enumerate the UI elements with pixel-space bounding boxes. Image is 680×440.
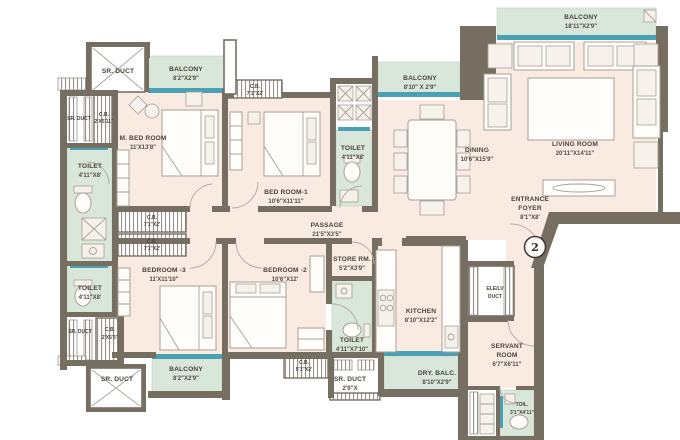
label-toilet-mid: TOILET	[341, 145, 365, 152]
svg-text:FOYER: FOYER	[518, 205, 542, 212]
svg-text:2'X5'3": 2'X5'3"	[102, 335, 119, 341]
label-sr-duct-tl: SR. DUCT	[102, 68, 134, 75]
floor-plan-drawing: SR. DUCT BALCONY 8'2"X2'9" SR. DUCT C.B.…	[0, 0, 680, 440]
svg-text:DUCT: DUCT	[488, 294, 502, 300]
label-sr-duct-left: SR. DUCT	[67, 116, 91, 122]
label-dry-balcony: DRY. BALC.	[418, 370, 456, 377]
structural-column	[224, 40, 236, 94]
balcony-tl-floor	[147, 56, 224, 92]
unit-number-marker: 2	[525, 237, 546, 258]
svg-text:4'11"X8': 4'11"X8'	[79, 173, 102, 179]
label-kitchen: KITCHEN	[406, 308, 436, 315]
cb-mid1-box	[118, 210, 186, 232]
window-toil-servant	[500, 396, 503, 428]
label-store: STORE RM.	[333, 256, 371, 263]
label-sr-duct-l2: SR. DUCT	[68, 329, 92, 335]
svg-text:8'10"X12'2": 8'10"X12'2"	[405, 318, 438, 324]
balcony-tr-floor	[497, 8, 656, 38]
window-toilet-mid	[338, 127, 370, 131]
label-dining: DINING	[465, 147, 489, 154]
label-m-bedroom: M. BED ROOM	[119, 135, 166, 142]
label-balcony-bl: BALCONY	[169, 366, 203, 373]
label-cb-l2: C.B.	[105, 327, 116, 333]
label-servant: SERVANT	[491, 343, 523, 350]
label-toilet-kitchen: TOILET	[340, 337, 364, 344]
label-balcony-tm: BALCONY	[403, 75, 437, 82]
svg-text:11'X11'10": 11'X11'10"	[149, 277, 178, 283]
svg-text:8'10" X 2'9": 8'10" X 2'9"	[404, 85, 437, 91]
svg-text:20'11"X14'11": 20'11"X14'11"	[556, 151, 595, 157]
label-entrance-foyer: ENTRANCE	[511, 196, 549, 203]
label-sr-duct-bm: SR. DUCT	[334, 376, 366, 383]
floor-plan: SR. DUCT BALCONY 8'2"X2'9" SR. DUCT C.B.…	[0, 0, 680, 440]
label-bedroom2: BEDROOM -2	[263, 267, 307, 274]
label-balcony-tl: BALCONY	[169, 66, 203, 73]
unit-number: 2	[531, 241, 539, 254]
svg-text:21'5"X3'5": 21'5"X3'5"	[312, 232, 341, 238]
svg-text:4'11"X8': 4'11"X8'	[342, 155, 365, 161]
window-balcony-tm	[378, 92, 460, 97]
svg-text:7'1"X2': 7'1"X2'	[144, 222, 160, 228]
wc-toilet-mid	[344, 162, 360, 182]
svg-text:5'1"X2': 5'1"X2'	[296, 367, 312, 373]
svg-text:4'11"X7'10": 4'11"X7'10"	[336, 347, 368, 353]
svg-text:4'11"X8': 4'11"X8'	[79, 295, 102, 301]
svg-text:10'6"X12': 10'6"X12'	[272, 277, 299, 283]
tv-console	[543, 180, 615, 196]
label-cb-top: C.B.	[250, 84, 261, 90]
label-toil-servant: TOIL.	[516, 402, 529, 408]
svg-text:7'1"X2': 7'1"X2'	[144, 246, 160, 252]
svg-text:11'X13'8": 11'X13'8"	[130, 145, 156, 151]
label-sr-duct-bl: SR. DUCT	[101, 376, 133, 383]
cb-mid2-box	[118, 234, 186, 256]
svg-text:2'X5'11": 2'X5'11"	[95, 119, 115, 125]
label-balcony-tr: BALCONY	[564, 14, 598, 21]
svg-text:3'1"X4'11": 3'1"X4'11"	[510, 410, 535, 416]
wc-toil-servant	[510, 415, 528, 429]
svg-text:18'11"X2'9": 18'11"X2'9"	[565, 24, 597, 30]
label-toilet-b3: TOILET	[78, 285, 102, 292]
svg-text:8'1"X8': 8'1"X8'	[520, 215, 540, 221]
label-living: LIVING ROOM	[552, 141, 598, 148]
rug	[528, 78, 614, 140]
label-bedroom1: BED ROOM-1	[264, 189, 308, 196]
svg-text:7'1"X2': 7'1"X2'	[247, 91, 263, 97]
svg-text:10'6"X11'11": 10'6"X11'11"	[268, 199, 303, 205]
sink	[445, 326, 458, 348]
svg-text:2'9"X: 2'9"X	[343, 386, 358, 392]
svg-text:10'6"X15'9": 10'6"X15'9"	[461, 157, 494, 163]
label-cb-left: C.B.	[99, 112, 110, 118]
window-balcony-bl	[152, 354, 222, 359]
label-cb-mid1: C.B.	[147, 215, 158, 221]
svg-text:8'10"X2'9": 8'10"X2'9"	[422, 380, 451, 386]
sill-hatch	[330, 393, 380, 400]
label-bedroom3: BEDROOM -3	[142, 267, 186, 274]
wc-toilet-mbed	[75, 193, 91, 213]
svg-text:8'2"X2'9": 8'2"X2'9"	[173, 376, 199, 382]
svg-text:ROOM: ROOM	[496, 352, 517, 359]
label-cb-bottom: C.B.	[299, 360, 310, 366]
window-balcony-tr	[497, 35, 656, 40]
label-toilet-mbed: TOILET	[78, 163, 102, 170]
label-elev-duct: ELE/LV	[486, 286, 504, 292]
svg-text:6'7"X6'11": 6'7"X6'11"	[493, 362, 522, 368]
label-passage: PASSAGE	[311, 222, 344, 229]
svg-text:8'2"X2'9": 8'2"X2'9"	[173, 76, 199, 82]
label-cb-mid2: C.B.	[147, 239, 158, 245]
svg-text:5'2"X3'9": 5'2"X3'9"	[339, 266, 365, 272]
